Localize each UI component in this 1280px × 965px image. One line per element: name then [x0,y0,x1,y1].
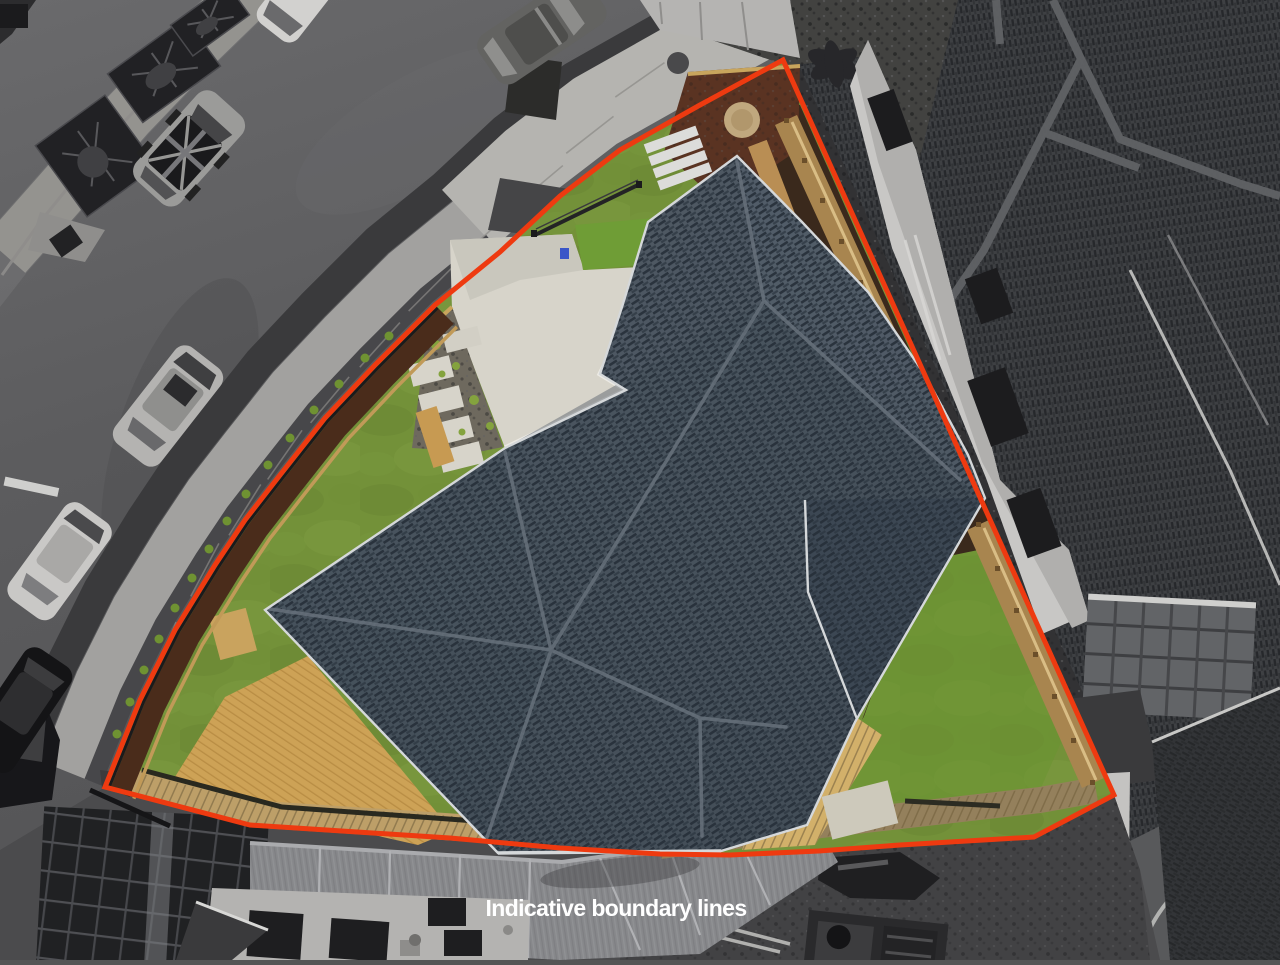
svg-text:Indicative boundary lines: Indicative boundary lines [485,895,746,921]
